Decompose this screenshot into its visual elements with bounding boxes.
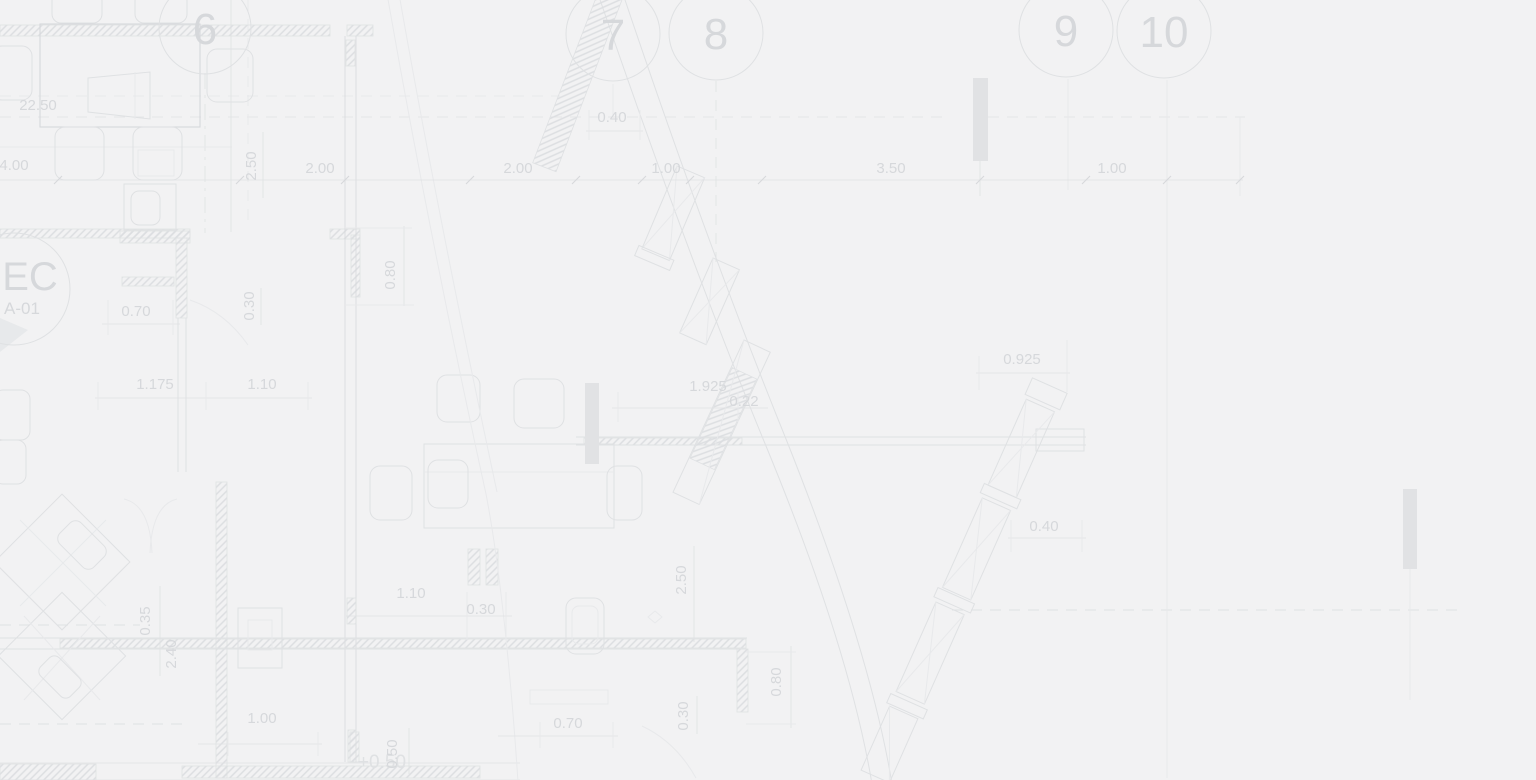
marker-bar bbox=[1403, 489, 1417, 569]
room-tag-name: EC bbox=[2, 255, 58, 299]
dimension-label: 0.30 bbox=[241, 291, 258, 320]
grid-bubble-label: 6 bbox=[193, 5, 217, 54]
grid-bubble-label: 7 bbox=[601, 11, 625, 60]
dimension-label: 0.80 bbox=[382, 260, 399, 289]
dimension-label: 1.00 bbox=[1097, 160, 1126, 177]
grid-bubble-label: 8 bbox=[704, 10, 728, 59]
dimension-label: 0.40 bbox=[1029, 518, 1058, 535]
dimension-label: 2.50 bbox=[673, 565, 690, 594]
dimension-label: 3.50 bbox=[876, 160, 905, 177]
marker-bar bbox=[973, 78, 988, 161]
dimension-label: 1.175 bbox=[136, 376, 174, 393]
dimension-label: 0.50 bbox=[384, 739, 401, 768]
dimension-label: 0.22 bbox=[729, 393, 758, 410]
dimension-label: 22.50 bbox=[19, 97, 57, 114]
floorplan-canvas: 6 7 8 9 10 EC A-01 22.50 4.00 2.00 2.00 … bbox=[0, 0, 1536, 780]
dimension-label: 1.10 bbox=[396, 585, 425, 602]
grid-bubble-label: 9 bbox=[1054, 7, 1078, 56]
dimension-label: 1.10 bbox=[247, 376, 276, 393]
grid-bubble-label: 10 bbox=[1140, 8, 1189, 57]
dimension-label: 2.50 bbox=[243, 151, 260, 180]
dimension-label: 2.00 bbox=[305, 160, 334, 177]
dimension-label: 0.30 bbox=[675, 701, 692, 730]
blueprint-background: 6 7 8 9 10 EC A-01 22.50 4.00 2.00 2.00 … bbox=[0, 0, 1536, 780]
dimension-label: 4.00 bbox=[0, 157, 29, 174]
dimension-label: 1.925 bbox=[689, 378, 727, 395]
dimension-label: 0.40 bbox=[597, 109, 626, 126]
room-tag-code: A-01 bbox=[4, 299, 40, 318]
dimension-label: 0.70 bbox=[553, 715, 582, 732]
dimension-label: 0.30 bbox=[466, 601, 495, 618]
dimension-label: 2.00 bbox=[503, 160, 532, 177]
dimension-label: 0.35 bbox=[137, 606, 154, 635]
marker-bar bbox=[585, 383, 599, 464]
dimension-label: 0.925 bbox=[1003, 351, 1041, 368]
dimension-label: 0.70 bbox=[121, 303, 150, 320]
dimension-label: 2.40 bbox=[163, 639, 180, 668]
dimension-label: 1.00 bbox=[651, 160, 680, 177]
dimension-label: 1.00 bbox=[247, 710, 276, 727]
dimension-label: 0.80 bbox=[768, 667, 785, 696]
